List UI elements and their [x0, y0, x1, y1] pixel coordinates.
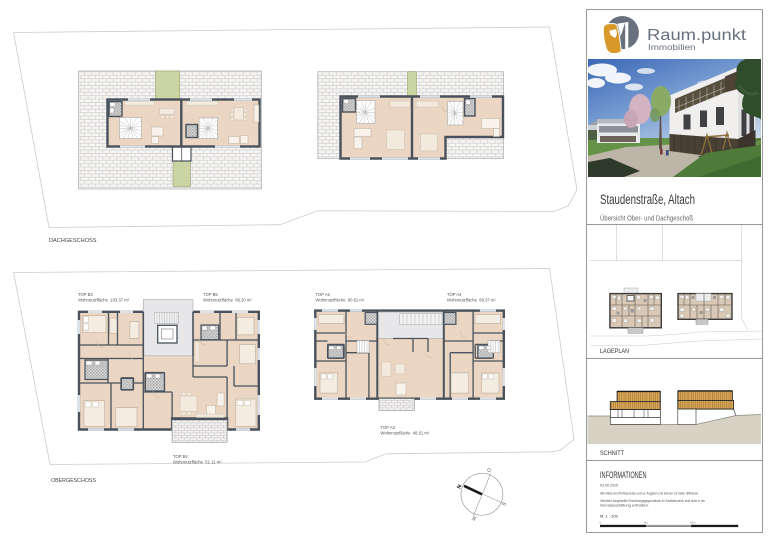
- svg-text:Strichliert dargestellte Einri: Strichliert dargestellte Einrichtungsgeg…: [600, 499, 706, 503]
- svg-text:Wohnnutzfläche 103.37 m²: Wohnnutzfläche 103.37 m²: [78, 298, 130, 303]
- svg-text:TOP A3: TOP A3: [381, 425, 396, 430]
- svg-text:Grundausstattung enthalten.: Grundausstattung enthalten.: [600, 504, 649, 508]
- svg-text:Wohnnutzfläche 48.61 m²: Wohnnutzfläche 48.61 m²: [381, 431, 430, 436]
- svg-text:O: O: [485, 467, 492, 473]
- svg-text:Übersicht Ober- und Dachgescho: Übersicht Ober- und Dachgeschoß: [600, 215, 693, 223]
- svg-text:SCHNITT: SCHNITT: [600, 450, 624, 457]
- svg-text:OBERGESCHOSS: OBERGESCHOSS: [51, 478, 96, 484]
- svg-text:DACHGESCHOSS: DACHGESCHOSS: [49, 238, 97, 244]
- svg-text:TOP A4: TOP A4: [447, 292, 462, 297]
- svg-text:TOP B4: TOP B4: [173, 454, 188, 459]
- svg-text:S: S: [500, 501, 507, 507]
- svg-text:10m: 10m: [690, 521, 696, 525]
- svg-text:Raum.punkt: Raum.punkt: [647, 27, 747, 44]
- svg-text:LAGEPLAN: LAGEPLAN: [600, 348, 629, 355]
- svg-text:Wohnnutzfläche 90.61 m²: Wohnnutzfläche 90.61 m²: [316, 298, 365, 303]
- svg-text:INFORMATIONEN: INFORMATIONEN: [600, 470, 647, 480]
- svg-text:Wohnnutzfläche 51.11 m²: Wohnnutzfläche 51.11 m²: [173, 460, 222, 465]
- svg-text:Staudenstraße, Altach: Staudenstraße, Altach: [600, 192, 695, 207]
- svg-text:N: N: [456, 484, 463, 490]
- svg-text:W: W: [471, 515, 479, 522]
- svg-text:TOP B3: TOP B3: [78, 292, 93, 297]
- svg-text:Immobilien: Immobilien: [648, 43, 696, 52]
- svg-text:03.06.2025: 03.06.2025: [600, 484, 618, 488]
- svg-text:TOP A2: TOP A2: [316, 292, 331, 297]
- svg-text:Wohnnutzfläche 86.20 m²: Wohnnutzfläche 86.20 m²: [203, 298, 252, 303]
- svg-text:Alle Maße sind Rohbaumaße und: Alle Maße sind Rohbaumaße und ca. Angabe…: [600, 492, 699, 496]
- svg-text:5m: 5m: [644, 521, 649, 525]
- svg-text:Wohnnutzfläche 89.37 m²: Wohnnutzfläche 89.37 m²: [447, 298, 496, 303]
- svg-text:M 1 : 200: M 1 : 200: [600, 514, 619, 519]
- svg-text:0: 0: [599, 521, 601, 525]
- svg-text:TOP B5: TOP B5: [203, 292, 218, 297]
